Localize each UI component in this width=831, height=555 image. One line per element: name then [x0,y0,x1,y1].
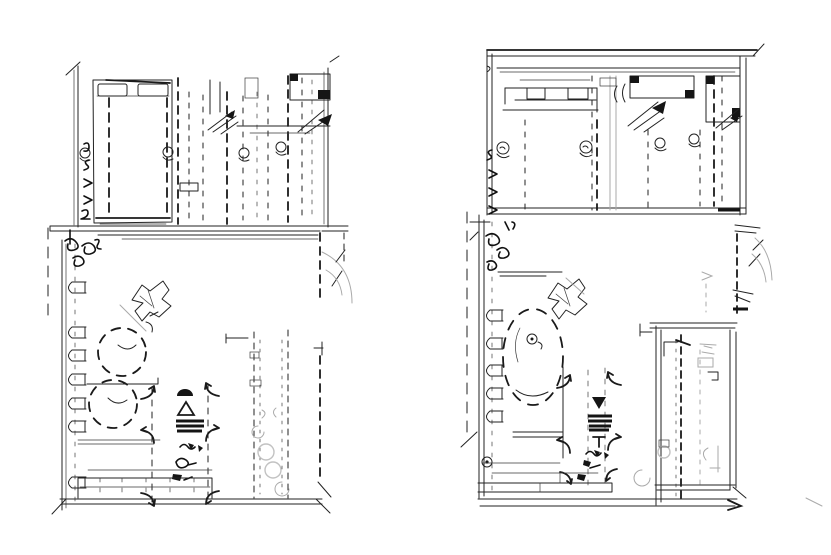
right-plan [461,44,822,510]
shelf-stub [498,272,562,276]
right-stair-strip [557,367,621,486]
dark-glyph-column [172,389,204,481]
coat-rack [65,230,101,266]
margin-squiggles [81,143,92,219]
right-coat-rack [486,222,515,270]
plant-sketch [120,281,171,331]
right-dark-glyph-column [577,397,612,481]
left-door-swing [322,250,352,303]
left-living-walls [48,228,331,514]
right-overhead-cabinets [600,76,742,132]
left-plan [48,56,352,514]
stair-strip [141,383,219,506]
double-bed [93,80,172,224]
right-plant-sketch [548,278,587,319]
sketch-svg [0,0,831,555]
window-sill-bars [50,226,348,264]
door-knob-circles [80,142,286,161]
floor-plan-sketch-canvas [0,0,831,555]
dashed-oval-table [503,309,563,437]
right-wall-chairs [482,310,503,467]
right-bed [503,80,598,112]
right-door-knobs [497,134,700,158]
right-hall-door [702,225,772,314]
right-counter-strip [226,330,289,498]
bathroom-block [634,323,746,505]
dashed-round-tables [87,312,158,428]
left-bedroom-walls [66,56,339,227]
wall-chairs [69,282,87,488]
